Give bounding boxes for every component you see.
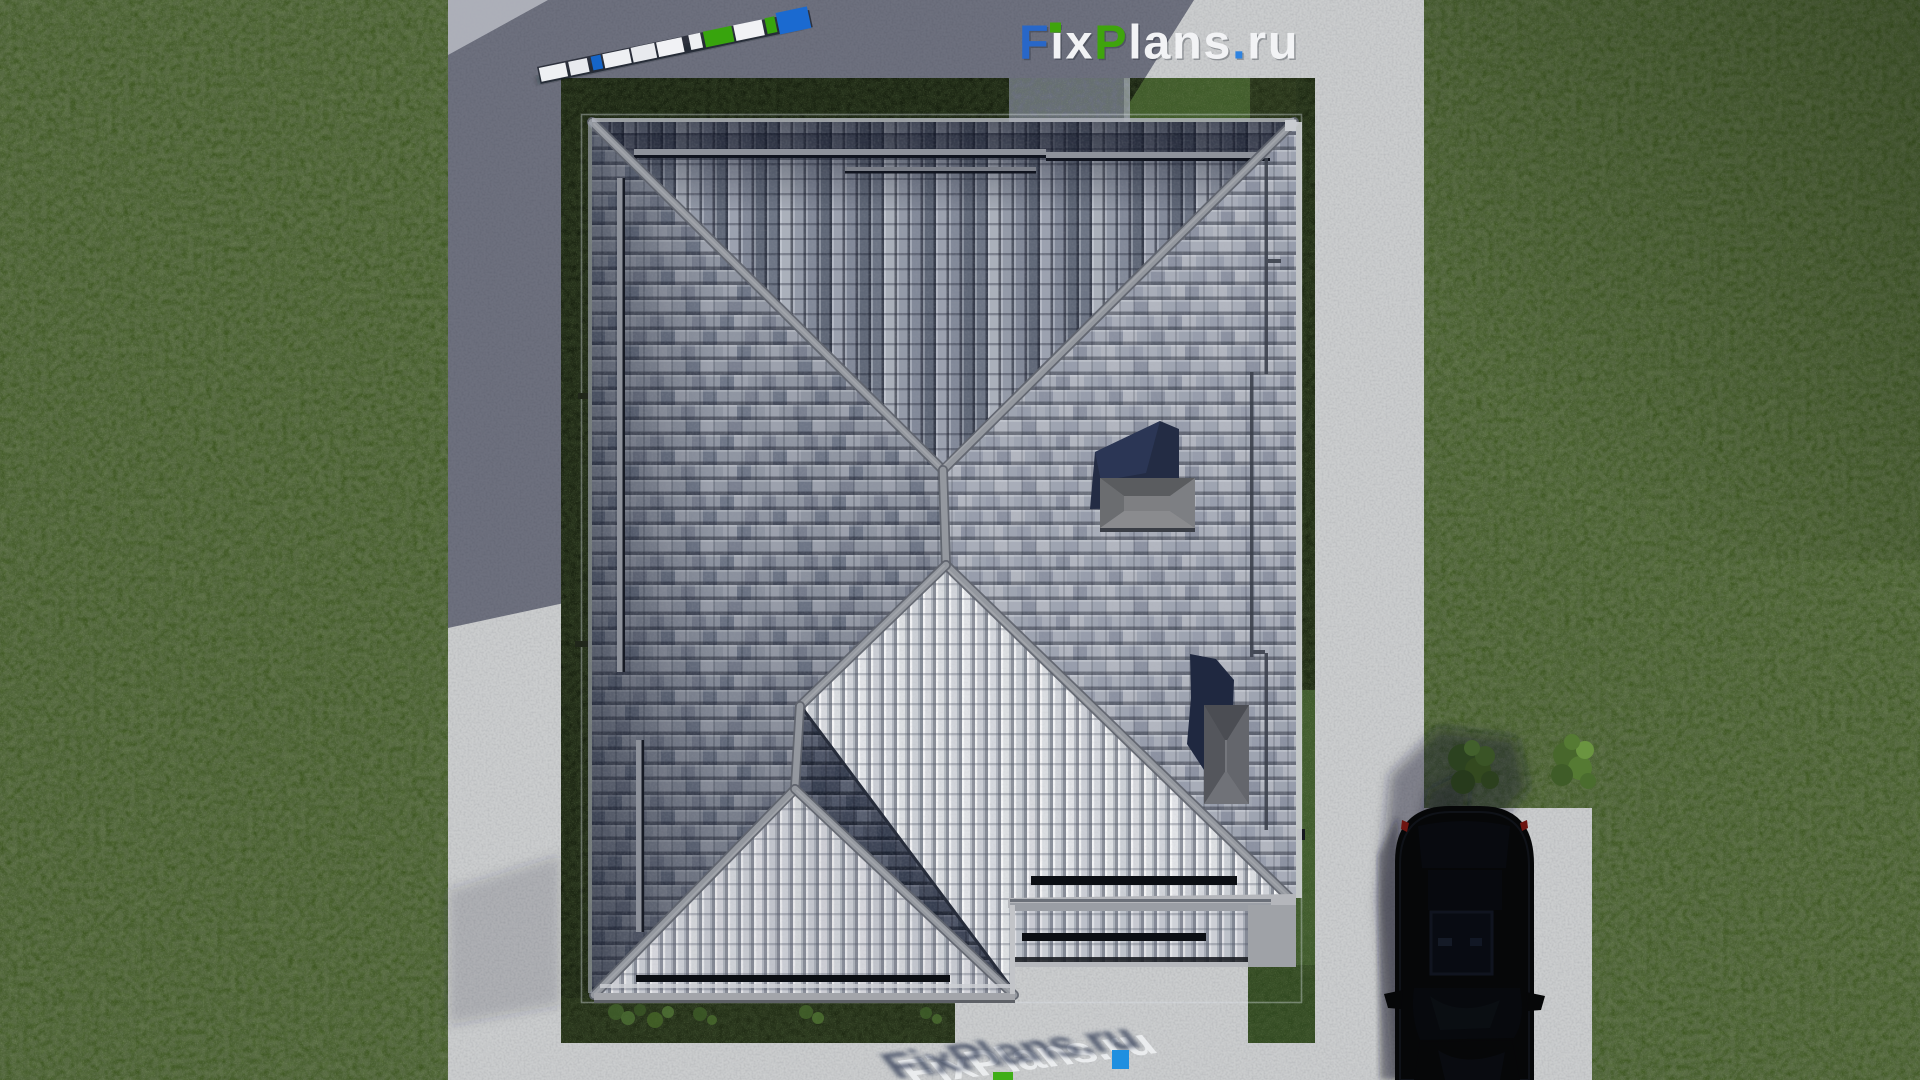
svg-text:FixPlans.ru: FixPlans.ru (1019, 16, 1299, 70)
